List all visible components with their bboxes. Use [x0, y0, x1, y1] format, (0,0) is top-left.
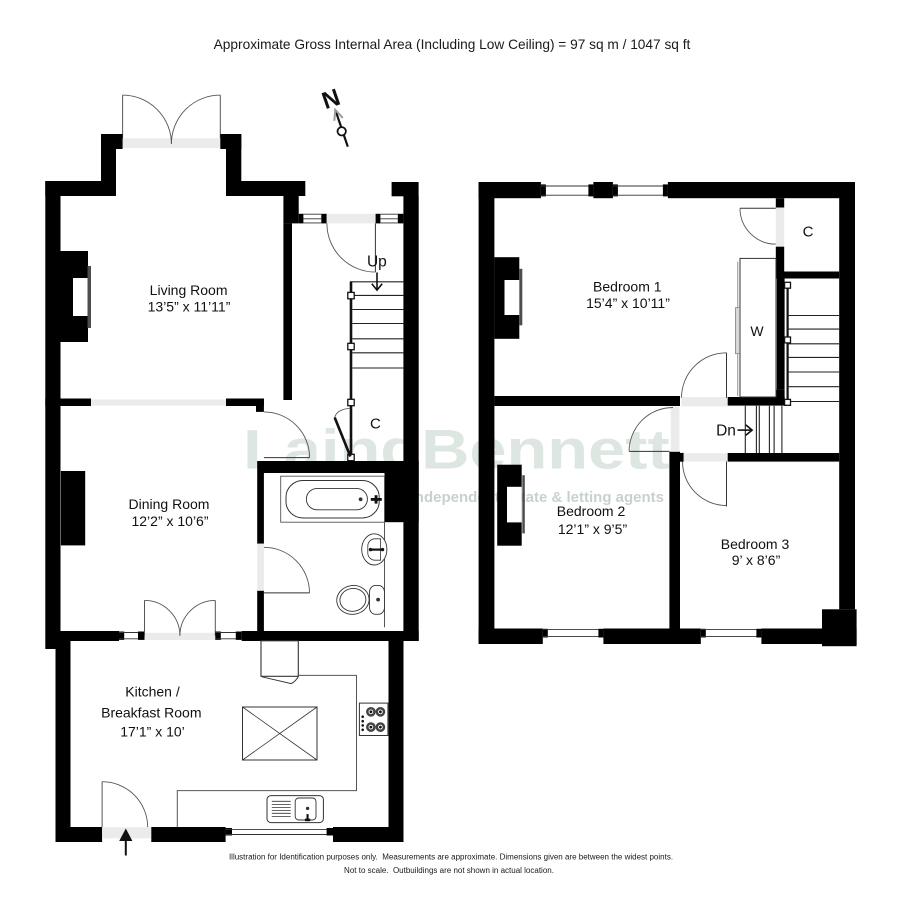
svg-text:Kitchen /: Kitchen / — [125, 684, 180, 700]
svg-text:C: C — [803, 224, 814, 241]
svg-text:Bedroom 3: Bedroom 3 — [721, 536, 790, 552]
svg-text:13’5” x 11’11”: 13’5” x 11’11” — [148, 298, 231, 314]
svg-text:Living Room: Living Room — [150, 282, 228, 298]
svg-text:W: W — [750, 323, 764, 339]
svg-text:Bedroom 2: Bedroom 2 — [557, 503, 626, 519]
svg-text:Up: Up — [367, 254, 387, 271]
svg-text:17’1” x 10’: 17’1” x 10’ — [120, 724, 185, 740]
svg-text:Dn: Dn — [716, 423, 736, 440]
svg-text:12’2” x 10’6”: 12’2” x 10’6” — [131, 513, 208, 529]
svg-text:Bedroom 1: Bedroom 1 — [593, 279, 662, 295]
svg-text:Approximate Gross Internal Are: Approximate Gross Internal Area (Includi… — [214, 37, 691, 52]
svg-text:Illustration for Identificatio: Illustration for Identification purposes… — [229, 853, 673, 862]
svg-text:independent estate & letting a: independent estate & letting agents — [411, 489, 664, 506]
svg-text:12’1” x 9’5”: 12’1” x 9’5” — [558, 521, 628, 537]
svg-text:15’4” x 10’11”: 15’4” x 10’11” — [586, 295, 670, 311]
svg-text:C: C — [370, 416, 381, 433]
svg-text:9’ x 8’6”: 9’ x 8’6” — [732, 552, 781, 568]
svg-text:Dining Room: Dining Room — [129, 496, 210, 512]
svg-text:Not to scale. Outbuildings ar: Not to scale. Outbuildings are not shown… — [344, 866, 554, 875]
svg-text:Breakfast Room: Breakfast Room — [101, 705, 201, 721]
